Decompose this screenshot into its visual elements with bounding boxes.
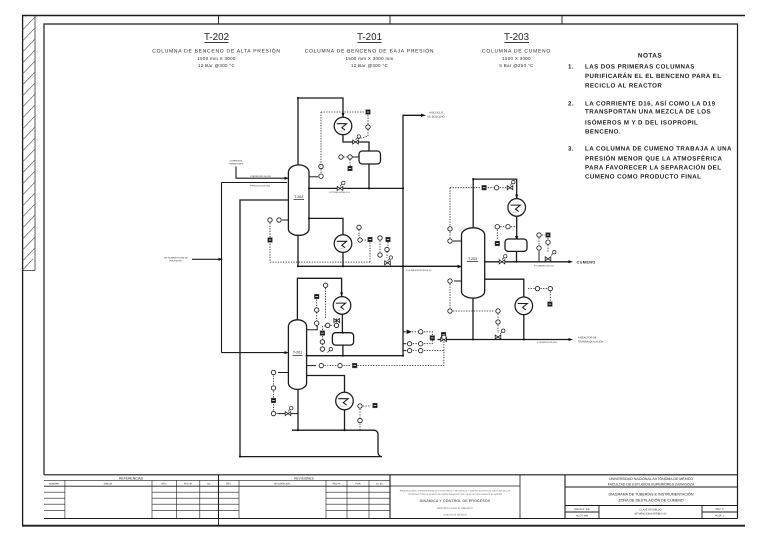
- svg-text:PROYECTO FASE III: DIBUJO IV: PROYECTO FASE III: DIBUJO IV: [437, 507, 473, 510]
- svg-text:3.: 3.: [568, 146, 574, 153]
- svg-text:ISÓMEROS M Y D DEL ISOPROPIL: ISÓMEROS M Y D DEL ISOPROPIL: [585, 119, 698, 127]
- svg-text:RE-ALIMENTACIÓN DE: RE-ALIMENTACIÓN DE: [164, 256, 188, 259]
- svg-text:REV: 0: REV: 0: [716, 508, 724, 511]
- svg-text:NOTAS: NOTAS: [638, 53, 662, 60]
- svg-text:TRANSPORTAN UNA MEZCLA DE LOS: TRANSPORTAN UNA MEZCLA DE LOS: [585, 109, 711, 116]
- svg-text:ESCALA: S/E: ESCALA: S/E: [574, 508, 590, 511]
- svg-text:A RECICLO: A RECICLO: [429, 112, 443, 115]
- svg-text:PRESIÓN MENOR QUE LA ATMOSFÉRI: PRESIÓN MENOR QUE LA ATMOSFÉRICA: [585, 155, 722, 163]
- svg-text:P-RECICLO-DE-002: P-RECICLO-DE-002: [250, 184, 271, 187]
- svg-text:T-201: T-201: [293, 351, 302, 355]
- svg-text:FECHA: FECHA: [333, 482, 341, 485]
- svg-text:DE BENCENO: DE BENCENO: [427, 116, 444, 119]
- svg-text:REV: REV: [226, 482, 231, 485]
- svg-text:HOJA: 1: HOJA: 1: [715, 515, 725, 518]
- svg-text:P-FONDOS-DE-019: P-FONDOS-DE-019: [537, 341, 557, 344]
- svg-text:LAS DOS PRIMERAS COLUMNAS: LAS DOS PRIMERAS COLUMNAS: [585, 64, 695, 71]
- svg-text:UNIVERSIDAD NACIONAL AUTÓNOMA: UNIVERSIDAD NACIONAL AUTÓNOMA DE MÉXICO: [609, 476, 693, 481]
- svg-text:CIUDAD DE MÉXICO: CIUDAD DE MÉXICO: [443, 512, 466, 516]
- svg-text:DESCRIPCIÓN: DESCRIPCIÓN: [274, 482, 290, 485]
- svg-text:COLUMNA DE BENCENO DE BAJA PRE: COLUMNA DE BENCENO DE BAJA PRESIÓN: [305, 47, 435, 54]
- svg-text:T-203: T-203: [504, 32, 530, 43]
- svg-text:DINÁMICA Y CONTROL DE PROCESOS: DINÁMICA Y CONTROL DE PROCESOS: [420, 498, 491, 503]
- svg-text:SE MENCIONA ARRIBA 100: SE MENCIONA ARRIBA 100: [635, 513, 668, 516]
- svg-text:DIAGRAMA DE TUBERÍAS E INSTRUM: DIAGRAMA DE TUBERÍAS E INSTRUMENTACIÓN: [608, 491, 693, 496]
- svg-text:COLUMNA DE BENCENO DE ALTA PRE: COLUMNA DE BENCENO DE ALTA PRESIÓN: [152, 47, 281, 54]
- svg-text:P-ALIMENTACION-DE-13: P-ALIMENTACION-DE-13: [406, 269, 432, 272]
- svg-text:LA CORRIENTE D16, ASÍ COMO LA: LA CORRIENTE D16, ASÍ COMO LA D19: [585, 100, 716, 108]
- svg-text:12 Bar @300 °C: 12 Bar @300 °C: [198, 63, 235, 68]
- svg-text:No.: No.: [207, 483, 211, 486]
- svg-text:P-CUMENO-DE-017: P-CUMENO-DE-017: [534, 265, 555, 268]
- svg-text:RECICLO AL REACTOR: RECICLO AL REACTOR: [585, 83, 662, 90]
- svg-text:PARA FAVORECER LA SEPARACIÓN D: PARA FAVORECER LA SEPARACIÓN DEL: [585, 164, 721, 172]
- svg-text:NOMBRE: NOMBRE: [49, 482, 60, 485]
- svg-text:Vo. Bo.: Vo. Bo.: [376, 482, 384, 485]
- svg-text:PURIFICARÁN EL EL BENCENO PARA: PURIFICARÁN EL EL BENCENO PARA EL: [585, 72, 721, 80]
- svg-text:CLASE DE DIBUJO: CLASE DE DIBUJO: [639, 508, 661, 511]
- svg-text:POR: POR: [356, 482, 361, 485]
- svg-text:1500 X 3000: 1500 X 3000: [502, 56, 531, 61]
- svg-text:1.: 1.: [568, 64, 574, 71]
- svg-text:A REACTOR DE: A REACTOR DE: [578, 337, 597, 340]
- svg-text:FECHA: FECHA: [184, 483, 192, 486]
- svg-text:1500 mm X 3000: 1500 mm X 3000: [197, 56, 236, 61]
- svg-text:CORRIENTE: CORRIENTE: [230, 159, 243, 162]
- svg-text:T-203: T-203: [468, 257, 477, 261]
- svg-text:CONSTRUCCION DE PLANOS DE PROC: CONSTRUCCION DE PLANOS DE PROCESAMIENTO …: [408, 493, 502, 496]
- svg-text:5 Bar @250 °C: 5 Bar @250 °C: [499, 63, 533, 68]
- svg-text:REFERENCIAS: REFERENCIAS: [119, 476, 144, 480]
- svg-text:CUMENO COMO PRODUCTO FINAL: CUMENO COMO PRODUCTO FINAL: [585, 174, 701, 181]
- svg-text:LA COLUMNA DE CUMENO TRABAJA A: LA COLUMNA DE CUMENO TRABAJA A UNA: [585, 146, 732, 153]
- svg-text:T-202: T-202: [294, 195, 303, 199]
- svg-text:DIBUJO: DIBUJO: [104, 482, 113, 485]
- svg-text:CUMENO: CUMENO: [577, 260, 596, 264]
- svg-text:12 Bar @300 °C: 12 Bar @300 °C: [351, 63, 388, 68]
- svg-text:BENCENO.: BENCENO.: [585, 129, 621, 136]
- svg-text:ACOT: MM: ACOT: MM: [576, 515, 588, 518]
- svg-text:P-BENCENO-DE-001: P-BENCENO-DE-001: [250, 175, 272, 178]
- svg-text:T-201: T-201: [357, 32, 382, 43]
- svg-text:REVISIONES: REVISIONES: [294, 476, 314, 480]
- svg-text:PROPILENO: PROPILENO: [170, 260, 183, 263]
- svg-text:ZONA DE DESTILACIÓN DE CUMENO: ZONA DE DESTILACIÓN DE CUMENO: [618, 498, 683, 503]
- svg-text:TRANSALQUILACIÓN: TRANSALQUILACIÓN: [578, 340, 603, 344]
- svg-text:P-TORRE-DESV-D-4: P-TORRE-DESV-D-4: [329, 191, 350, 194]
- svg-text:T-202: T-202: [204, 32, 229, 43]
- svg-text:COLUMNA DE CUMENO: COLUMNA DE CUMENO: [482, 48, 551, 54]
- svg-text:2.: 2.: [568, 101, 574, 108]
- svg-text:PARA REALIZAR LA TRANSFERENCIA: PARA REALIZAR LA TRANSFERENCIA TECNOLOGI…: [400, 490, 511, 493]
- svg-text:TRANSITORIA: TRANSITORIA: [229, 162, 244, 165]
- svg-text:REV: REV: [162, 483, 167, 486]
- svg-text:FACULTAD DE ESTUDIOS SUPERIORE: FACULTAD DE ESTUDIOS SUPERIORES ZARAGOZA: [608, 483, 695, 487]
- svg-text:1500 mm X 3000 mm: 1500 mm X 3000 mm: [346, 56, 394, 61]
